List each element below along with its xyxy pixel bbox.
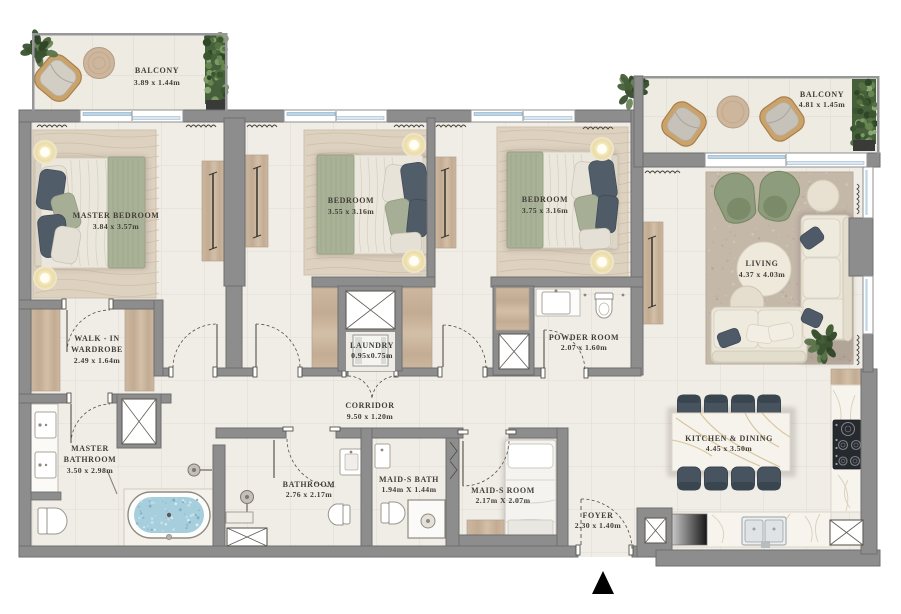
svg-text:0.95x0.75m: 0.95x0.75m	[351, 351, 393, 360]
svg-text:BEDROOM: BEDROOM	[328, 196, 374, 205]
svg-text:1.94m X 1.44m: 1.94m X 1.44m	[381, 485, 436, 494]
svg-text:MAID-S ROOM: MAID-S ROOM	[471, 486, 535, 495]
svg-text:3.50 x 2.98m: 3.50 x 2.98m	[67, 466, 113, 475]
svg-text:LAUNDRY: LAUNDRY	[350, 341, 394, 350]
svg-text:MASTER: MASTER	[71, 444, 109, 453]
svg-text:3.55 x 3.16m: 3.55 x 3.16m	[328, 207, 374, 216]
svg-text:2.76 x 2.17m: 2.76 x 2.17m	[286, 490, 332, 499]
svg-text:2.07 x 1.60m: 2.07 x 1.60m	[561, 343, 607, 352]
svg-text:BALCONY: BALCONY	[135, 66, 179, 75]
svg-text:4.37 x 4.03m: 4.37 x 4.03m	[739, 270, 785, 279]
svg-text:WARDROBE: WARDROBE	[71, 345, 123, 354]
svg-text:2.49 x 1.64m: 2.49 x 1.64m	[74, 356, 120, 365]
svg-text:BATHROOM: BATHROOM	[64, 455, 117, 464]
svg-text:9.50 x 1.20m: 9.50 x 1.20m	[347, 412, 393, 421]
svg-text:MASTER BEDROOM: MASTER BEDROOM	[73, 211, 160, 220]
svg-text:3.84 x 3.57m: 3.84 x 3.57m	[93, 222, 139, 231]
svg-text:3.89 x 1.44m: 3.89 x 1.44m	[134, 78, 180, 87]
svg-text:4.81 x 1.45m: 4.81 x 1.45m	[799, 100, 845, 109]
svg-text:4.45 x 3.50m: 4.45 x 3.50m	[706, 444, 752, 453]
svg-text:FOYER: FOYER	[583, 511, 614, 520]
svg-text:BALCONY: BALCONY	[800, 90, 844, 99]
svg-text:WALK - IN: WALK - IN	[74, 334, 119, 343]
svg-text:BEDROOM: BEDROOM	[522, 195, 568, 204]
svg-text:MAID-S BATH: MAID-S BATH	[379, 475, 439, 484]
svg-text:2.30 x 1.40m: 2.30 x 1.40m	[575, 521, 621, 530]
svg-text:KITCHEN & DINING: KITCHEN & DINING	[685, 434, 773, 443]
svg-text:2.17m X 2.07m: 2.17m X 2.07m	[475, 496, 530, 505]
svg-text:CORRIDOR: CORRIDOR	[345, 401, 394, 410]
svg-text:BATHROOM: BATHROOM	[283, 480, 336, 489]
svg-text:LIVING: LIVING	[746, 259, 779, 268]
svg-text:POWDER ROOM: POWDER ROOM	[549, 333, 619, 342]
svg-text:3.75 x 3.16m: 3.75 x 3.16m	[522, 206, 568, 215]
